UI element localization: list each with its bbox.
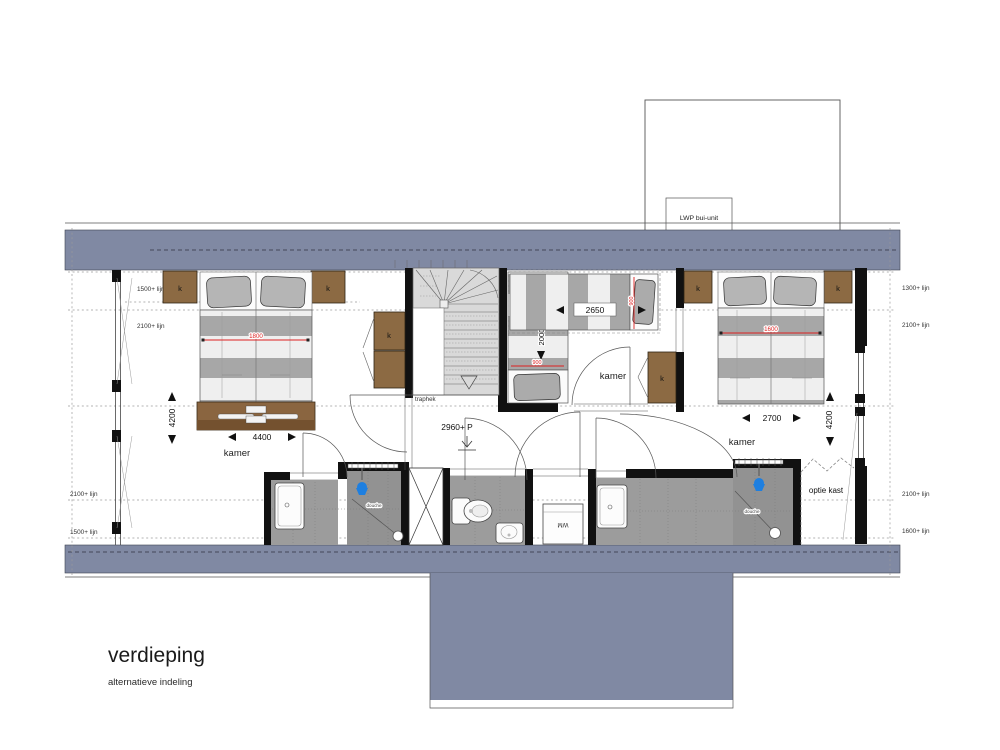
optie-kast-label: optie kast: [809, 486, 844, 495]
floor-plan-svg: LWP bui-unit: [0, 0, 1000, 750]
page-title: verdieping: [108, 644, 205, 667]
pillow: [260, 276, 306, 308]
wardrobe-label: k: [387, 331, 391, 340]
floor-plan-drawing: LWP bui-unit: [0, 0, 1000, 750]
label-1300-lijn-top-right: 1300+ lijn: [902, 285, 930, 292]
label-2100-lijn-bottom-left: 2100+ lijn: [70, 491, 98, 498]
staircase: traphek: [405, 268, 499, 403]
sink-cabinet: [597, 485, 627, 528]
dim-1600-label: 1600: [764, 326, 778, 333]
toilet-room: [450, 476, 525, 545]
dim-4400: 4400: [228, 432, 296, 442]
hand-basin: [496, 523, 523, 543]
bed-single-horizontal: 2650 900: [508, 270, 660, 333]
dormer-outline: LWP bui-unit: [645, 100, 840, 231]
douche-right-label: douche: [744, 509, 760, 514]
dim-4200-left-label: 4200: [167, 408, 177, 427]
stair-void: [413, 308, 444, 395]
pillow: [773, 276, 816, 306]
dim-900v-label: 900: [629, 297, 635, 306]
bathroom-left: douche: [271, 462, 403, 545]
label-2100-lijn-bottom-right: 2100+ lijn: [902, 491, 930, 498]
peil-symbol: [458, 436, 476, 450]
wm-closet: WM: [543, 504, 583, 544]
page-subtitle: alternatieve indeling: [108, 677, 193, 688]
wardrobe-lower: [374, 351, 405, 388]
closet-left-2-label: k: [326, 284, 330, 293]
dim-2650-label: 2650: [586, 305, 605, 315]
pillow: [514, 373, 561, 401]
dim-1800-label: 1800: [249, 333, 263, 340]
wm-label: WM: [558, 521, 569, 528]
kamer-left-label: kamer: [224, 448, 250, 459]
label-1600-lijn-bottom-right: 1600+ lijn: [902, 528, 930, 535]
closet-middle-room-label: k: [660, 374, 664, 383]
sink-cabinet: [275, 483, 304, 529]
label-2100-lijn-top-right: 2100+ lijn: [902, 322, 930, 329]
dim-4200-right: 4200: [824, 392, 834, 446]
dim-4400-label: 4400: [253, 432, 272, 442]
closet-middle-door-swings: [638, 357, 648, 398]
dim-2000-label: 2000: [537, 329, 546, 346]
roof-extension-bottom: [430, 573, 733, 708]
label-1500-lijn-bottom-left: 1500+ lijn: [70, 529, 98, 536]
pillow: [206, 276, 252, 308]
shower-drain: [393, 531, 403, 541]
label-2100-lijn-top-left: 2100+ lijn: [137, 323, 165, 330]
dim-2960-label: 2960+ P: [441, 422, 473, 432]
bed-right-double: 1600: [718, 272, 824, 404]
dim-900-label: 900: [533, 360, 542, 366]
pillow: [632, 279, 655, 324]
dim-2960-peil: 2960+ P: [441, 422, 476, 450]
exterior-wall-left-windows: [112, 270, 132, 545]
dim-2700: 2700: [742, 413, 801, 423]
bed-left-double: 1800: [197, 272, 315, 430]
title-block: verdieping alternatieve indeling: [108, 644, 205, 688]
dim-2700-label: 2700: [763, 413, 782, 423]
douche-left-label: douche: [366, 503, 382, 508]
optie-kast-area: optie kast: [801, 458, 854, 544]
closet-left-1-label: k: [178, 284, 182, 293]
wardrobe-door-swings: [363, 318, 374, 382]
roof-band-bottom: [65, 545, 900, 577]
shower-drain: [770, 528, 781, 539]
stair-newel-post: [440, 300, 448, 308]
window-swing-lines: [117, 278, 132, 528]
toilet: [452, 498, 492, 524]
kamer-right-label: kamer: [729, 437, 755, 448]
dim-4200-right-label: 4200: [824, 410, 834, 429]
traphek-label: traphek: [415, 396, 437, 403]
closet-right-2-label: k: [836, 284, 840, 293]
shaft: [409, 468, 443, 545]
label-1500-lijn-top-left: 1500+ lijn: [137, 286, 165, 293]
pillow: [723, 276, 766, 306]
closet-right-1-label: k: [696, 284, 700, 293]
roof-band-top: [65, 223, 900, 270]
lwp-unit-label: LWP bui-unit: [680, 215, 718, 222]
kamer-middle-label: kamer: [600, 371, 626, 382]
dresser: [197, 402, 315, 430]
dim-4200-left: 4200: [167, 392, 177, 444]
